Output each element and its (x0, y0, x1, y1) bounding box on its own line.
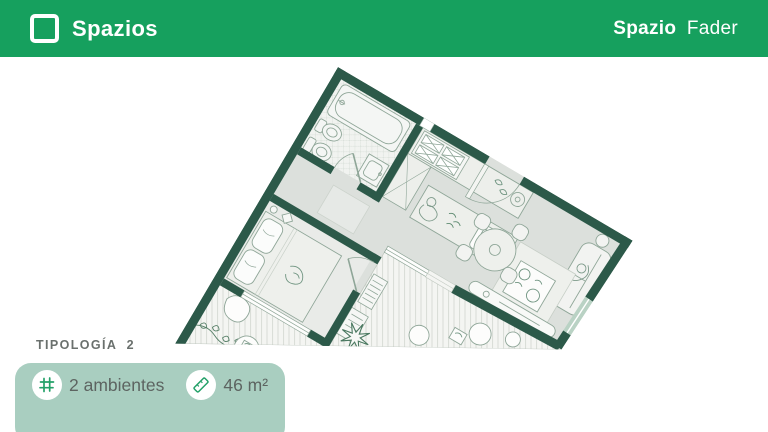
area-label: 46 m² (223, 375, 268, 396)
ruler-icon (186, 370, 216, 400)
typology-label: TIPOLOGÍA 2 (36, 338, 135, 352)
page: Spazios Spazio Fader (0, 0, 768, 432)
area-info: 46 m² (186, 370, 268, 400)
project-title-light: Fader (687, 18, 738, 39)
project-title-bold: Spazio (613, 18, 676, 39)
grid-icon (32, 370, 62, 400)
rooms-info: 2 ambientes (32, 370, 164, 400)
project-title: Spazio Fader (613, 18, 738, 40)
app-header: Spazios Spazio Fader (0, 0, 768, 57)
brand-name: Spazios (72, 16, 158, 42)
rooms-label: 2 ambientes (69, 375, 164, 396)
spazios-logo-icon (30, 14, 59, 43)
info-card: 2 ambientes 46 m² (15, 363, 285, 432)
